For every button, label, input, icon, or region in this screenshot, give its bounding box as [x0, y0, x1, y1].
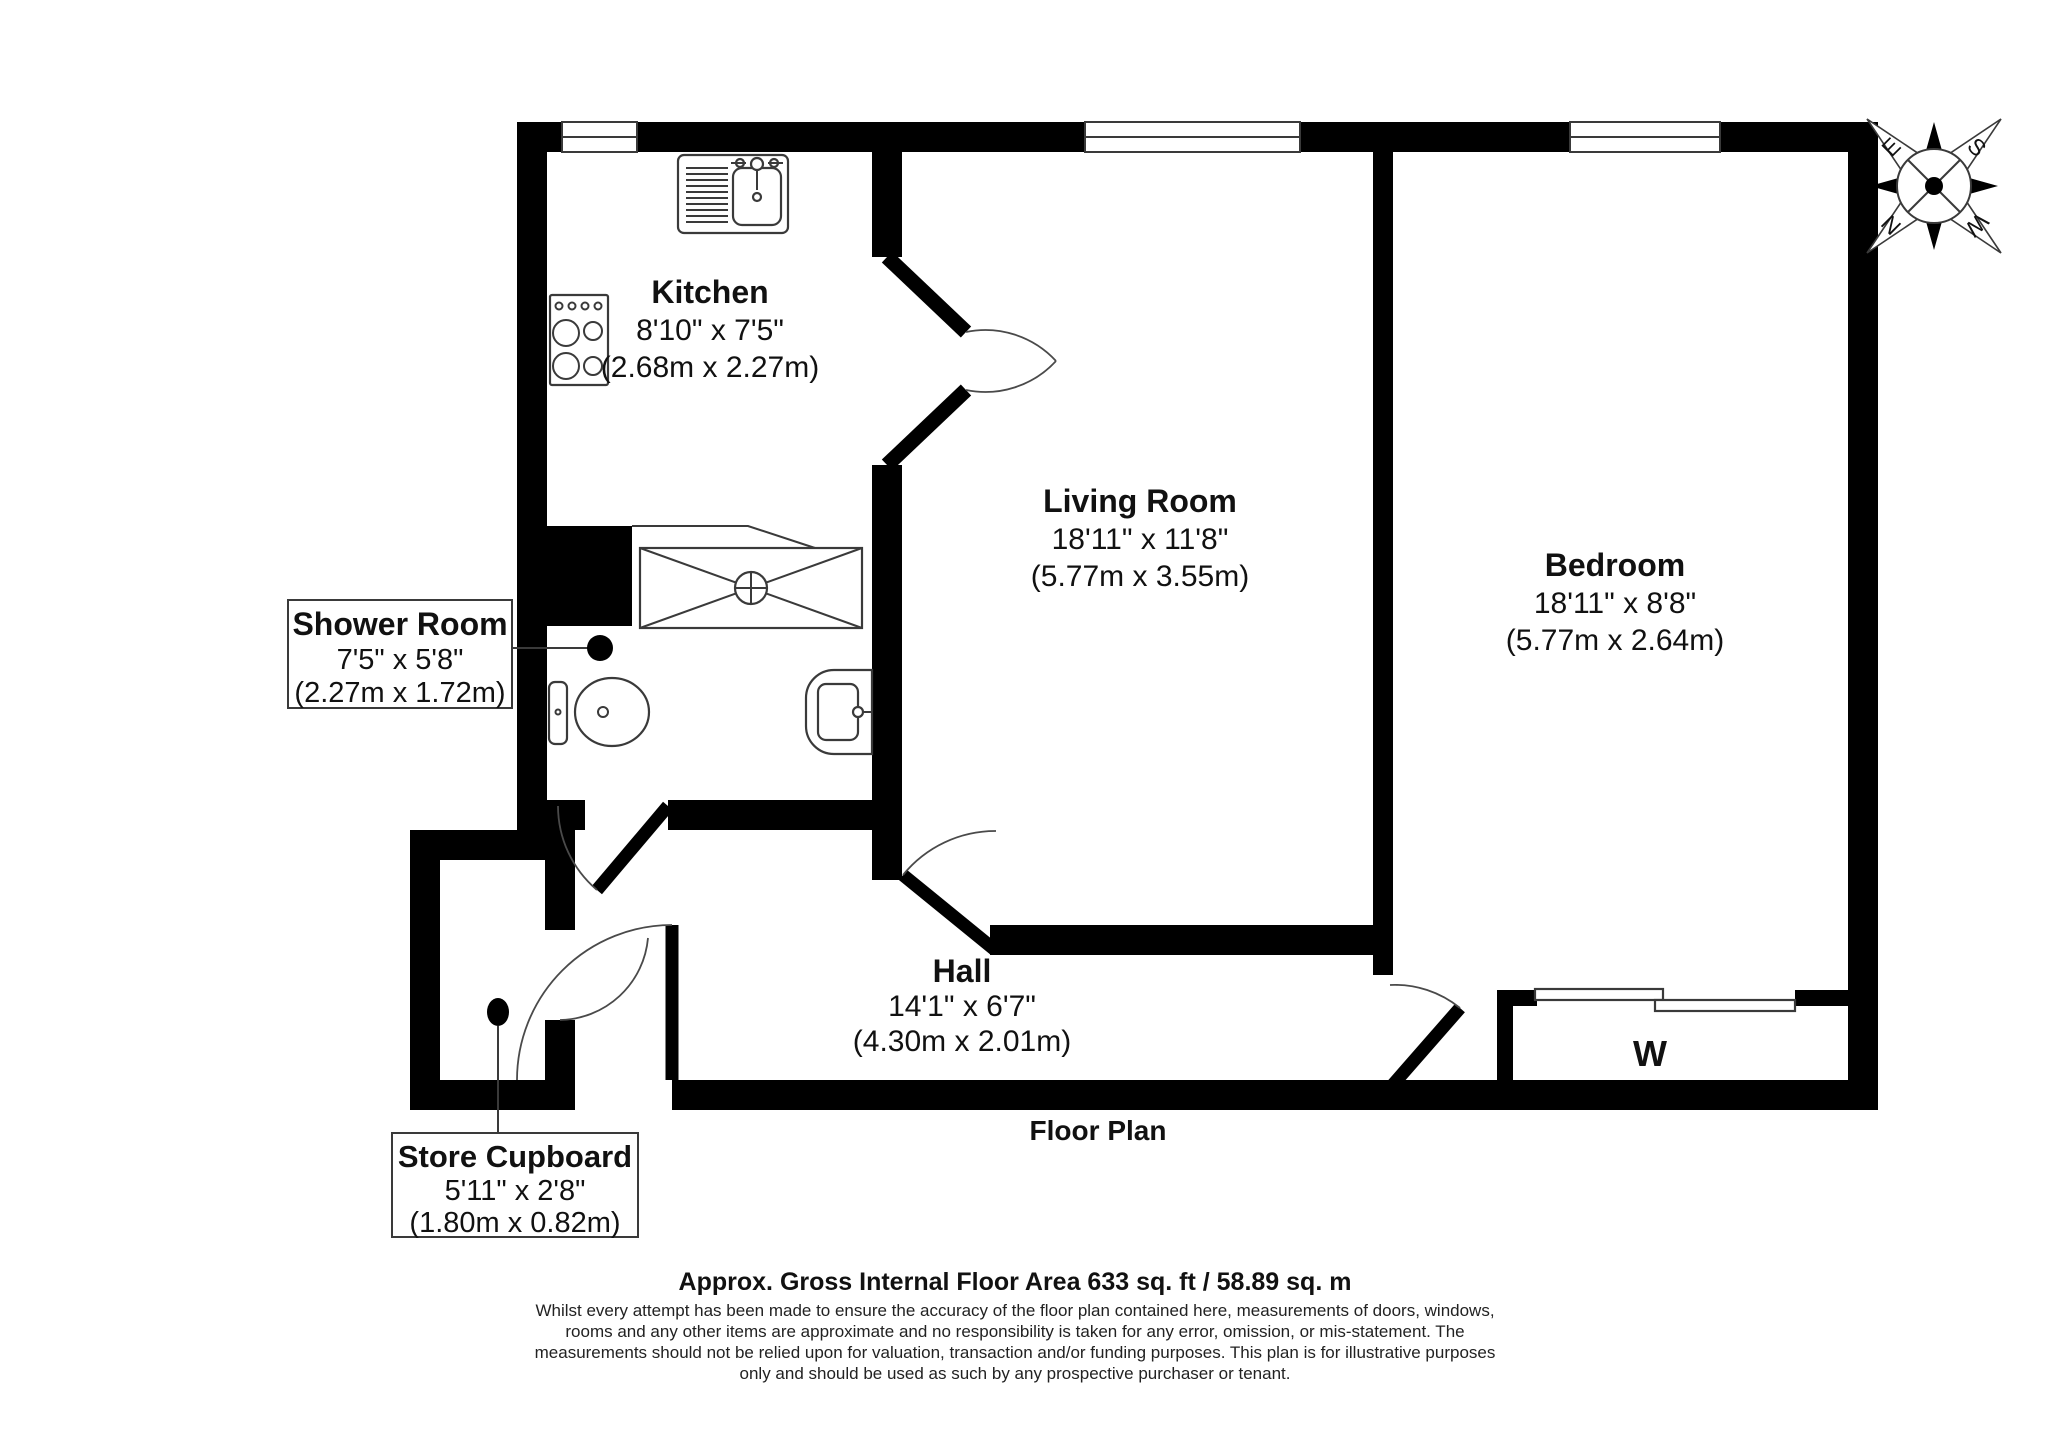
- living-room-door: [903, 831, 996, 950]
- wall-shower-right: [872, 502, 902, 800]
- wall-cupboard-top: [410, 830, 575, 860]
- living-room-name: Living Room: [1043, 483, 1237, 519]
- kitchen-window-icon: [562, 122, 637, 152]
- entrance-door: [517, 925, 672, 1080]
- store-cupboard-marker-dot: [487, 998, 509, 1026]
- wall-bottom: [672, 1080, 1878, 1110]
- living-room-window-icon: [1085, 122, 1300, 152]
- shower-room-dims-metric: (2.27m x 1.72m): [294, 677, 505, 709]
- wall-living-bedroom: [1373, 122, 1393, 975]
- shower-tray-icon: [640, 548, 862, 628]
- wardrobe-doors-icon: [1535, 989, 1795, 1011]
- wall-shower-bottom-left: [517, 800, 585, 830]
- basin-icon: [806, 670, 872, 754]
- duct-block: [547, 526, 632, 626]
- kitchen-door-arcs: [966, 330, 1056, 392]
- store-cupboard-dims-imperial: 5'11" x 2'8": [445, 1175, 586, 1207]
- disclaimer-line-3: measurements should not be relied upon f…: [535, 1343, 1496, 1362]
- hall-dims-imperial: 14'1" x 6'7": [888, 990, 1036, 1023]
- wall-shower-bottom-right: [668, 800, 902, 830]
- bedroom-dims-imperial: 18'11" x 8'8": [1534, 587, 1696, 620]
- floor-plan-drawing: Kitchen 8'10" x 7'5" (2.68m x 2.27m) Liv…: [0, 0, 2048, 1447]
- wall-cupboard-right-upper: [545, 860, 575, 930]
- hall-dims-metric: (4.30m x 2.01m): [853, 1025, 1071, 1058]
- wall-cupboard-bottom: [410, 1080, 575, 1110]
- bedroom-dims-metric: (5.77m x 2.64m): [1506, 624, 1724, 657]
- wall-kitchen-splay-top: [887, 257, 966, 332]
- bedroom-name: Bedroom: [1545, 547, 1685, 583]
- floor-plan-page: Kitchen 8'10" x 7'5" (2.68m x 2.27m) Liv…: [0, 0, 2048, 1447]
- kitchen-dims-imperial: 8'10" x 7'5": [636, 314, 784, 347]
- wall-kitchen-splay-bottom: [887, 390, 966, 465]
- footer: Approx. Gross Internal Floor Area 633 sq…: [535, 1268, 1496, 1383]
- bedroom-window-icon: [1570, 122, 1720, 152]
- compass-center-dot: [1925, 177, 1943, 195]
- disclaimer-line-4: only and should be used as such by any p…: [740, 1364, 1291, 1383]
- kitchen-dims-metric: (2.68m x 2.27m): [601, 351, 819, 384]
- plan-title: Floor Plan: [1030, 1115, 1167, 1146]
- wall-kitchen-living-lower: [872, 465, 902, 502]
- floor-area-line: Approx. Gross Internal Floor Area 633 sq…: [679, 1268, 1352, 1296]
- wall-hall-stub: [872, 830, 902, 880]
- living-room-dims-metric: (5.77m x 3.55m): [1031, 560, 1249, 593]
- store-cupboard-door: [560, 938, 648, 1020]
- bedroom-door: [1390, 985, 1460, 1088]
- store-cupboard-name: Store Cupboard: [398, 1139, 632, 1174]
- living-room-dims-imperial: 18'11" x 11'8": [1052, 523, 1229, 556]
- store-cupboard-dims-metric: (1.80m x 0.82m): [409, 1207, 620, 1239]
- wall-wardrobe-stub-right: [1795, 990, 1848, 1006]
- disclaimer-line-2: rooms and any other items are approximat…: [565, 1322, 1464, 1341]
- compass-rose-icon: E S N W: [1867, 119, 2001, 253]
- wall-right: [1848, 122, 1878, 1110]
- hall-name: Hall: [933, 953, 992, 989]
- wall-kitchen-living-upper: [872, 122, 902, 257]
- hall-label: Hall 14'1" x 6'7" (4.30m x 2.01m): [853, 953, 1071, 1058]
- wardrobe-label: W: [1633, 1033, 1667, 1074]
- kitchen-label: Kitchen 8'10" x 7'5" (2.68m x 2.27m): [601, 274, 819, 384]
- shower-room-dims-imperial: 7'5" x 5'8": [337, 644, 464, 676]
- shower-room-name: Shower Room: [292, 606, 507, 642]
- toilet-icon: [549, 678, 649, 746]
- wall-left: [517, 122, 547, 800]
- wall-cupboard-left: [410, 830, 440, 1110]
- living-room-label: Living Room 18'11" x 11'8" (5.77m x 3.55…: [1031, 483, 1249, 593]
- stove-icon: [550, 295, 608, 385]
- kitchen-name: Kitchen: [651, 274, 768, 310]
- kitchen-sink-icon: [678, 155, 788, 233]
- bedroom-label: Bedroom 18'11" x 8'8" (5.77m x 2.64m): [1506, 547, 1724, 657]
- shower-room-marker-dot: [587, 635, 613, 661]
- kitchen-floor-boundary: [632, 526, 815, 548]
- wall-wardrobe-stub-left: [1497, 990, 1537, 1006]
- disclaimer-line-1: Whilst every attempt has been made to en…: [535, 1301, 1494, 1320]
- wall-living-bottom: [990, 925, 1373, 955]
